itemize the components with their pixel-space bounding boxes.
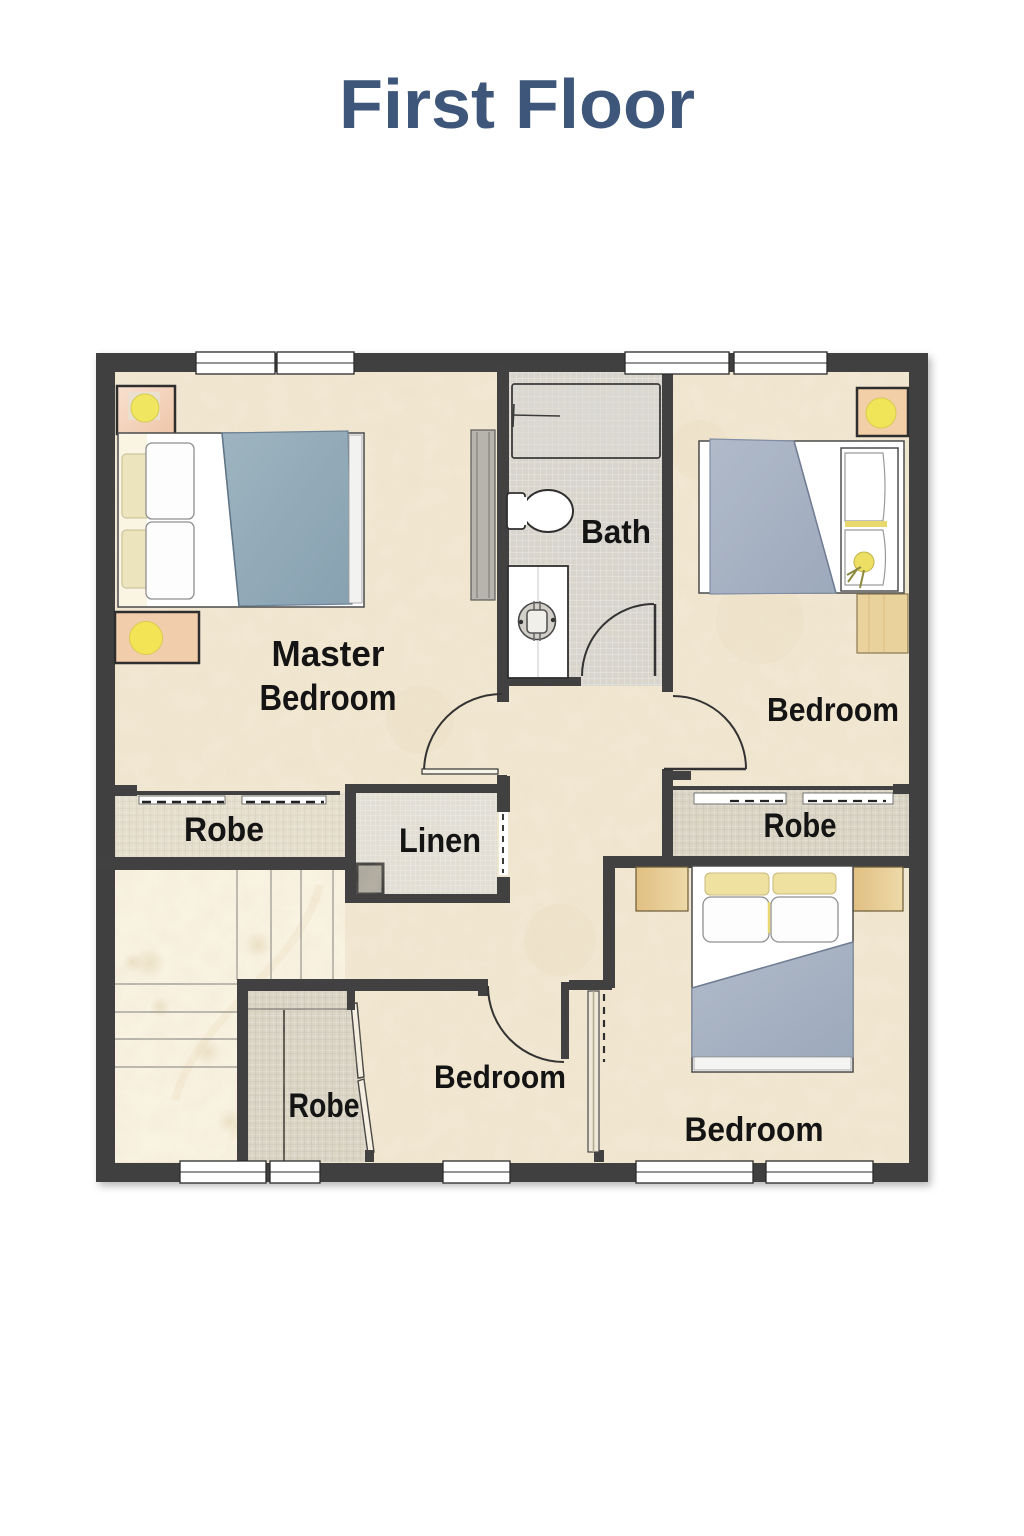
svg-text:Robe: Robe: [764, 807, 837, 845]
svg-text:Robe: Robe: [184, 811, 264, 849]
svg-text:Bedroom: Bedroom: [260, 677, 397, 718]
svg-text:Master: Master: [272, 633, 385, 674]
svg-text:Bedroom: Bedroom: [685, 1111, 824, 1149]
svg-text:Linen: Linen: [399, 822, 481, 860]
svg-text:Bedroom: Bedroom: [767, 691, 899, 728]
svg-text:First Floor: First Floor: [339, 65, 695, 143]
svg-text:Bedroom: Bedroom: [434, 1059, 566, 1095]
svg-text:Bath: Bath: [581, 513, 651, 550]
svg-text:Robe: Robe: [289, 1087, 360, 1125]
